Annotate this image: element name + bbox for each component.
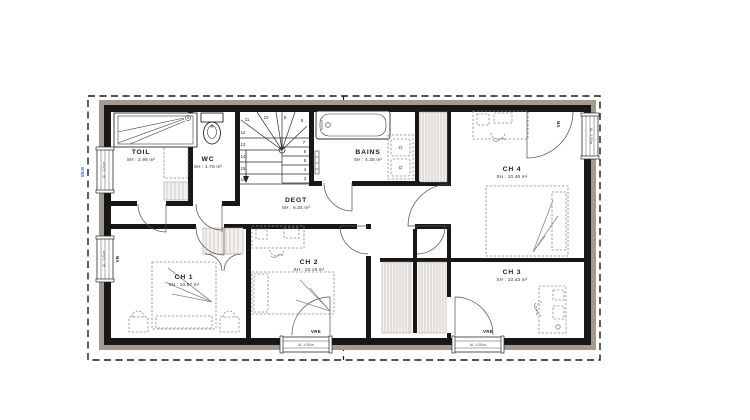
svg-text:SH : 10.46 m²: SH : 10.46 m² [497,174,528,179]
closet-ch2 [382,262,411,333]
svg-text:VR: VR [115,255,120,262]
shower [114,113,197,147]
floor-plan-canvas: 3 4 5 6 7 8 9 10 11 12 13 14 15 16 [0,0,750,420]
svg-text:SH : 6.34 m²: SH : 6.34 m² [282,205,310,210]
svg-text:15: 15 [241,166,246,171]
window-left-top: AL : 1.20 m [96,147,114,193]
downpipe-label: SB40 [80,166,85,177]
floor-plan: 3 4 5 6 7 8 9 10 11 12 13 14 15 16 [0,0,750,420]
svg-text:SH : 10.19 m²: SH : 10.19 m² [294,267,325,272]
svg-text:AL : 1.20 m: AL : 1.20 m [102,162,106,179]
svg-text:CH 1: CH 1 [175,274,194,281]
svg-text:CH 2: CH 2 [300,259,319,266]
svg-text:16: 16 [241,177,246,182]
svg-text:14: 14 [241,154,246,159]
svg-text:SH : 4.35 m²: SH : 4.35 m² [354,157,382,162]
svg-text:SH : 10.43 m²: SH : 10.43 m² [497,277,528,282]
svg-text:BAINS: BAINS [355,149,380,156]
svg-text:10: 10 [264,115,269,120]
svg-text:AL : 1.00 m: AL : 1.00 m [589,128,593,145]
svg-text:AL : 0.50 m: AL : 0.50 m [298,343,315,347]
svg-text:CH 4: CH 4 [503,166,522,173]
room-label-bains: BAINS SH : 4.35 m² [354,149,382,162]
closet-ch3 [419,262,446,333]
svg-text:AL : 0.50 m: AL : 0.50 m [470,343,487,347]
svg-text:VRE: VRE [483,329,493,334]
svg-text:AL : 1.20 m: AL : 1.20 m [102,251,106,268]
svg-text:SH : 2.98 m²: SH : 2.98 m² [127,157,155,162]
room-label-degt: DEGT SH : 6.34 m² [282,197,310,210]
svg-text:11: 11 [245,117,250,122]
closet-bains [420,112,447,182]
svg-text:SH : 1.78 m²: SH : 1.78 m² [194,164,222,169]
bathtub [316,111,390,139]
svg-text:VRE: VRE [311,329,321,334]
svg-text:12: 12 [241,130,246,135]
svg-text:VR: VR [556,120,561,127]
svg-text:DEGT: DEGT [285,197,307,204]
svg-text:SH : 10.67 m²: SH : 10.67 m² [169,282,200,287]
svg-text:13: 13 [241,142,246,147]
svg-text:TOIL: TOIL [132,149,151,156]
svg-text:WC: WC [202,156,215,163]
svg-text:CH 3: CH 3 [503,269,522,276]
